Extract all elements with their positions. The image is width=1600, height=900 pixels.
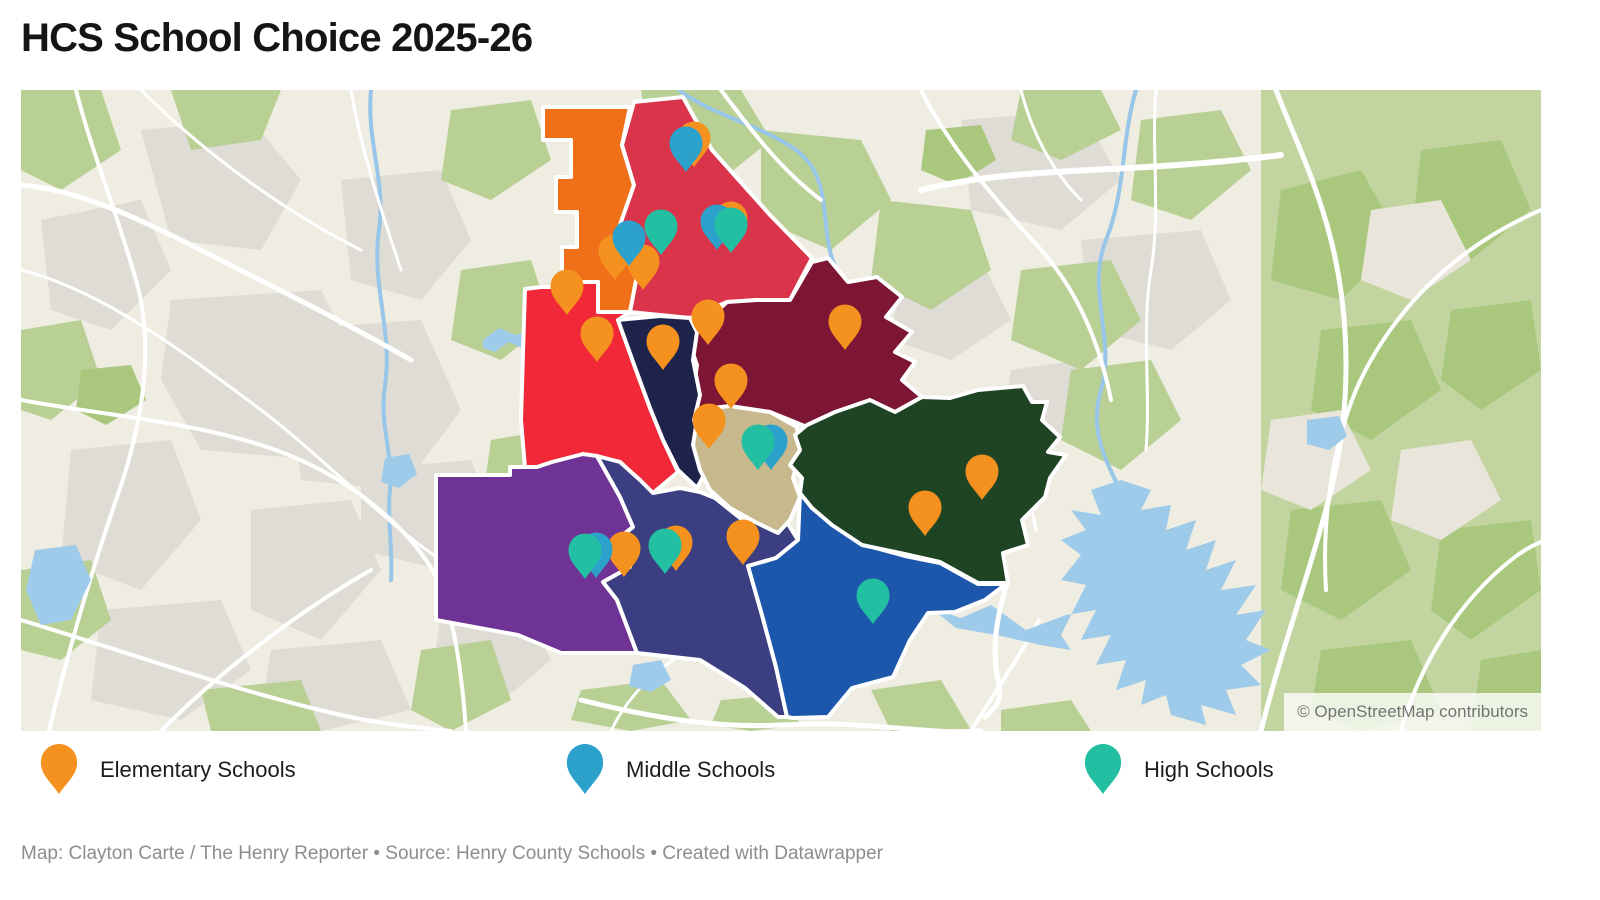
legend-label-high: High Schools — [1144, 757, 1274, 783]
map-canvas[interactable]: © OpenStreetMap contributors — [21, 90, 1541, 731]
legend-label-middle: Middle Schools — [626, 757, 775, 783]
legend-label-elementary: Elementary Schools — [100, 757, 296, 783]
map-legend: Elementary Schools Middle Schools High S… — [0, 744, 1600, 808]
middle-pin-icon — [566, 744, 604, 796]
basemap-forest — [1261, 90, 1541, 731]
osm-attribution[interactable]: © OpenStreetMap contributors — [1284, 693, 1541, 731]
high-pin-icon — [1084, 744, 1122, 796]
legend-item-elementary: Elementary Schools — [40, 744, 296, 796]
legend-item-high: High Schools — [1084, 744, 1274, 796]
elementary-pin-icon — [40, 744, 78, 796]
map-byline: Map: Clayton Carte / The Henry Reporter … — [21, 843, 883, 865]
basemap-svg — [21, 90, 1541, 731]
page-title: HCS School Choice 2025-26 — [21, 16, 532, 61]
legend-item-middle: Middle Schools — [566, 744, 775, 796]
